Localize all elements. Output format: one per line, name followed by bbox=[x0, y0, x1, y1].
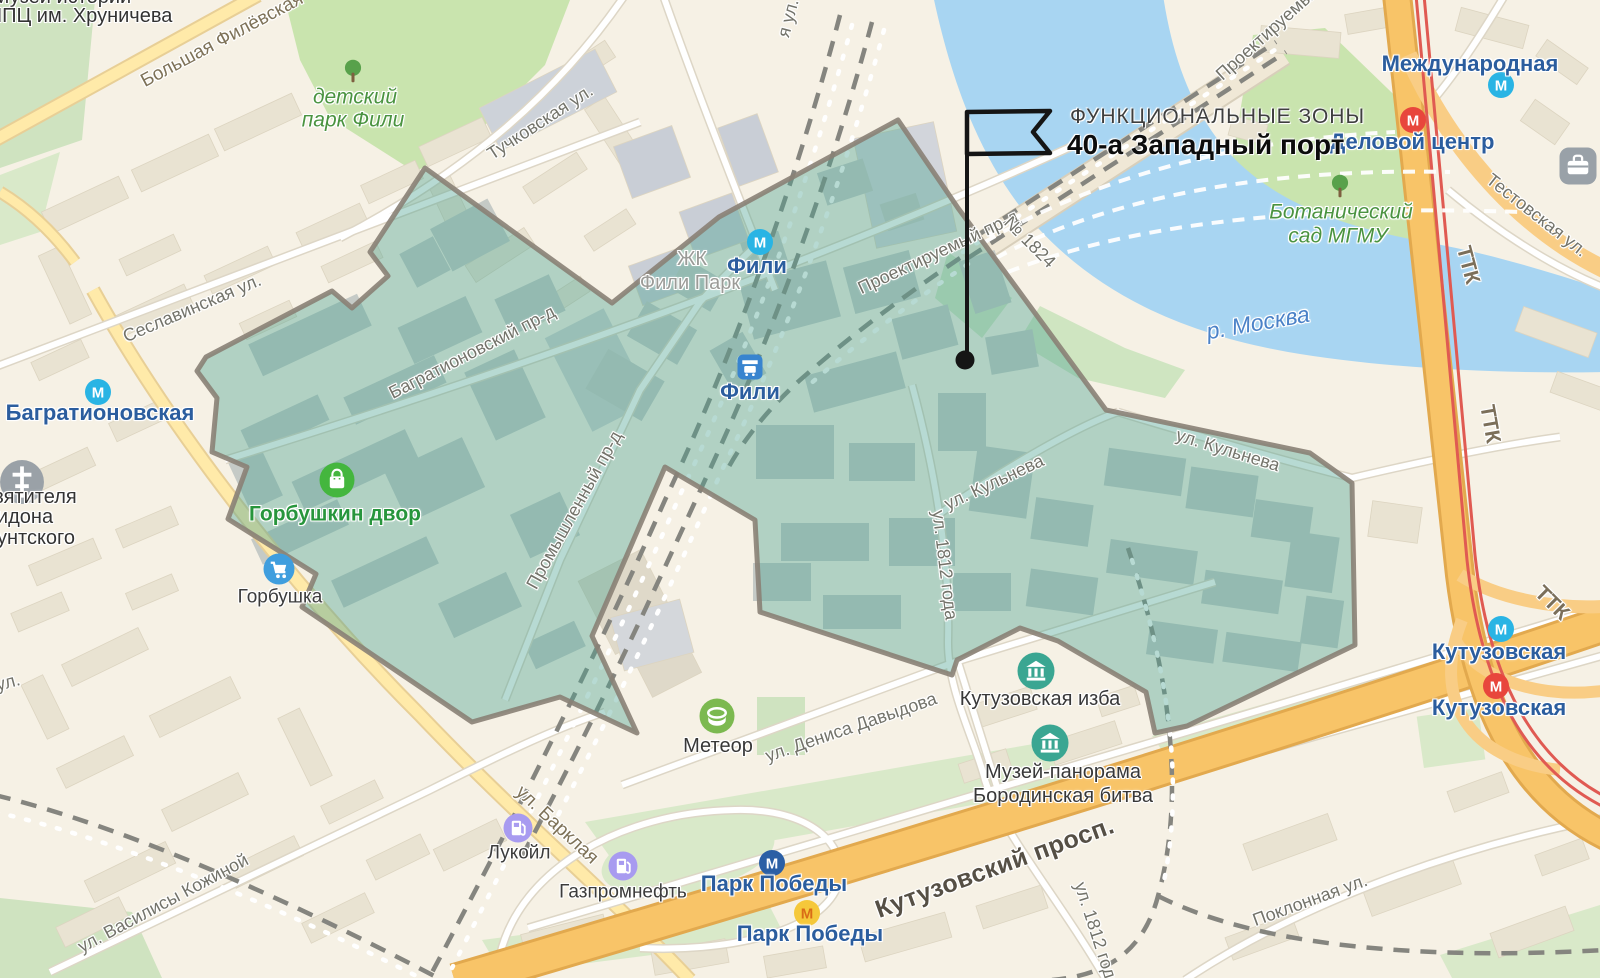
metro-label-mezhdunarodnaya[interactable]: Международная bbox=[1382, 53, 1559, 75]
poi-label-gorbushkin-dvor[interactable]: Горбушкин двор bbox=[249, 504, 421, 525]
tree-icon-detskiy-park[interactable] bbox=[339, 57, 367, 85]
park-label-botsad-line2[interactable]: сад МГМУ bbox=[1288, 226, 1387, 247]
poi-label-museum-history-line2: НПЦ им. Хруничева bbox=[0, 6, 172, 26]
poi-label-church-line3: унтского bbox=[0, 528, 75, 548]
park-label-detskiy-line2[interactable]: парк Фили bbox=[302, 110, 405, 131]
metro-label-park-pobedy-1[interactable]: Парк Победы bbox=[701, 873, 847, 895]
park-label-botsad-line1[interactable]: Ботанический bbox=[1269, 202, 1413, 223]
shopping-bag-icon-gorbushkin-dvor[interactable] bbox=[320, 463, 355, 498]
park-label-detskiy-line1[interactable]: детский bbox=[313, 87, 397, 108]
fuel-pump-icon-gazpromneft[interactable] bbox=[609, 852, 638, 881]
fuel-pump-icon-lukoil[interactable] bbox=[504, 814, 533, 843]
poi-label-meteor[interactable]: Метеор bbox=[683, 736, 753, 756]
map-viewport[interactable]: ММММММММ Музей историиНПЦ им. ХруничеваБ… bbox=[0, 0, 1600, 978]
poi-label-lukoil[interactable]: Лукойл bbox=[488, 844, 551, 863]
svg-text:М: М bbox=[754, 235, 767, 252]
metro-label-fili[interactable]: Фили bbox=[727, 255, 787, 277]
poi-label-panorama-line2[interactable]: Бородинская битва bbox=[973, 786, 1153, 806]
poi-label-gazpromneft[interactable]: Газпромнефть bbox=[559, 883, 687, 902]
svg-text:М: М bbox=[92, 385, 105, 402]
poi-label-panorama-line1[interactable]: Музей-панорама bbox=[985, 762, 1141, 782]
poi-label-zhk-line2: Фили Парк bbox=[640, 273, 740, 293]
train-station-icon-fili[interactable] bbox=[738, 355, 763, 380]
svg-text:М: М bbox=[801, 906, 814, 923]
svg-text:М: М bbox=[1495, 622, 1508, 639]
museum-icon-kutuzovskaya-izba[interactable] bbox=[1018, 653, 1055, 690]
svg-text:М: М bbox=[1490, 679, 1503, 696]
station-label-fili[interactable]: Фили bbox=[720, 381, 780, 403]
metro-label-park-pobedy-2[interactable]: Парк Победы bbox=[737, 923, 883, 945]
zone-label-kicker: ФУНКЦИОНАЛЬНЫЕ ЗОНЫ bbox=[1070, 106, 1365, 127]
zone-label-title: 40-а Западный порт bbox=[1067, 131, 1344, 159]
shopping-cart-icon-gorbushka[interactable] bbox=[264, 554, 295, 585]
metro-icon-fili[interactable]: М bbox=[747, 229, 774, 256]
metro-label-kutuzovskaya-2[interactable]: Кутузовская bbox=[1432, 697, 1566, 719]
metro-label-delovoy-centr[interactable]: Деловой центр bbox=[1330, 131, 1495, 153]
svg-text:М: М bbox=[1495, 78, 1508, 95]
poi-label-gorbushka[interactable]: Горбушка bbox=[238, 588, 323, 607]
briefcase-icon-business[interactable] bbox=[1560, 148, 1597, 185]
museum-icon-panorama[interactable] bbox=[1032, 725, 1069, 762]
metro-label-bagrationovskaya[interactable]: Багратионовская bbox=[6, 402, 195, 424]
poi-label-church-line1: вятителя bbox=[0, 487, 77, 507]
poi-label-kutuzovskaya-izba[interactable]: Кутузовская изба bbox=[960, 689, 1120, 709]
metro-label-kutuzovskaya-1[interactable]: Кутузовская bbox=[1432, 641, 1566, 663]
svg-text:М: М bbox=[1407, 113, 1420, 130]
tree-icon-botsad[interactable] bbox=[1326, 172, 1354, 200]
svg-text:М: М bbox=[766, 856, 779, 873]
stadium-icon-meteor[interactable] bbox=[700, 699, 735, 734]
poi-label-zhk-line1: ЖК bbox=[677, 249, 707, 269]
poi-label-church-line2: идона bbox=[0, 507, 53, 527]
